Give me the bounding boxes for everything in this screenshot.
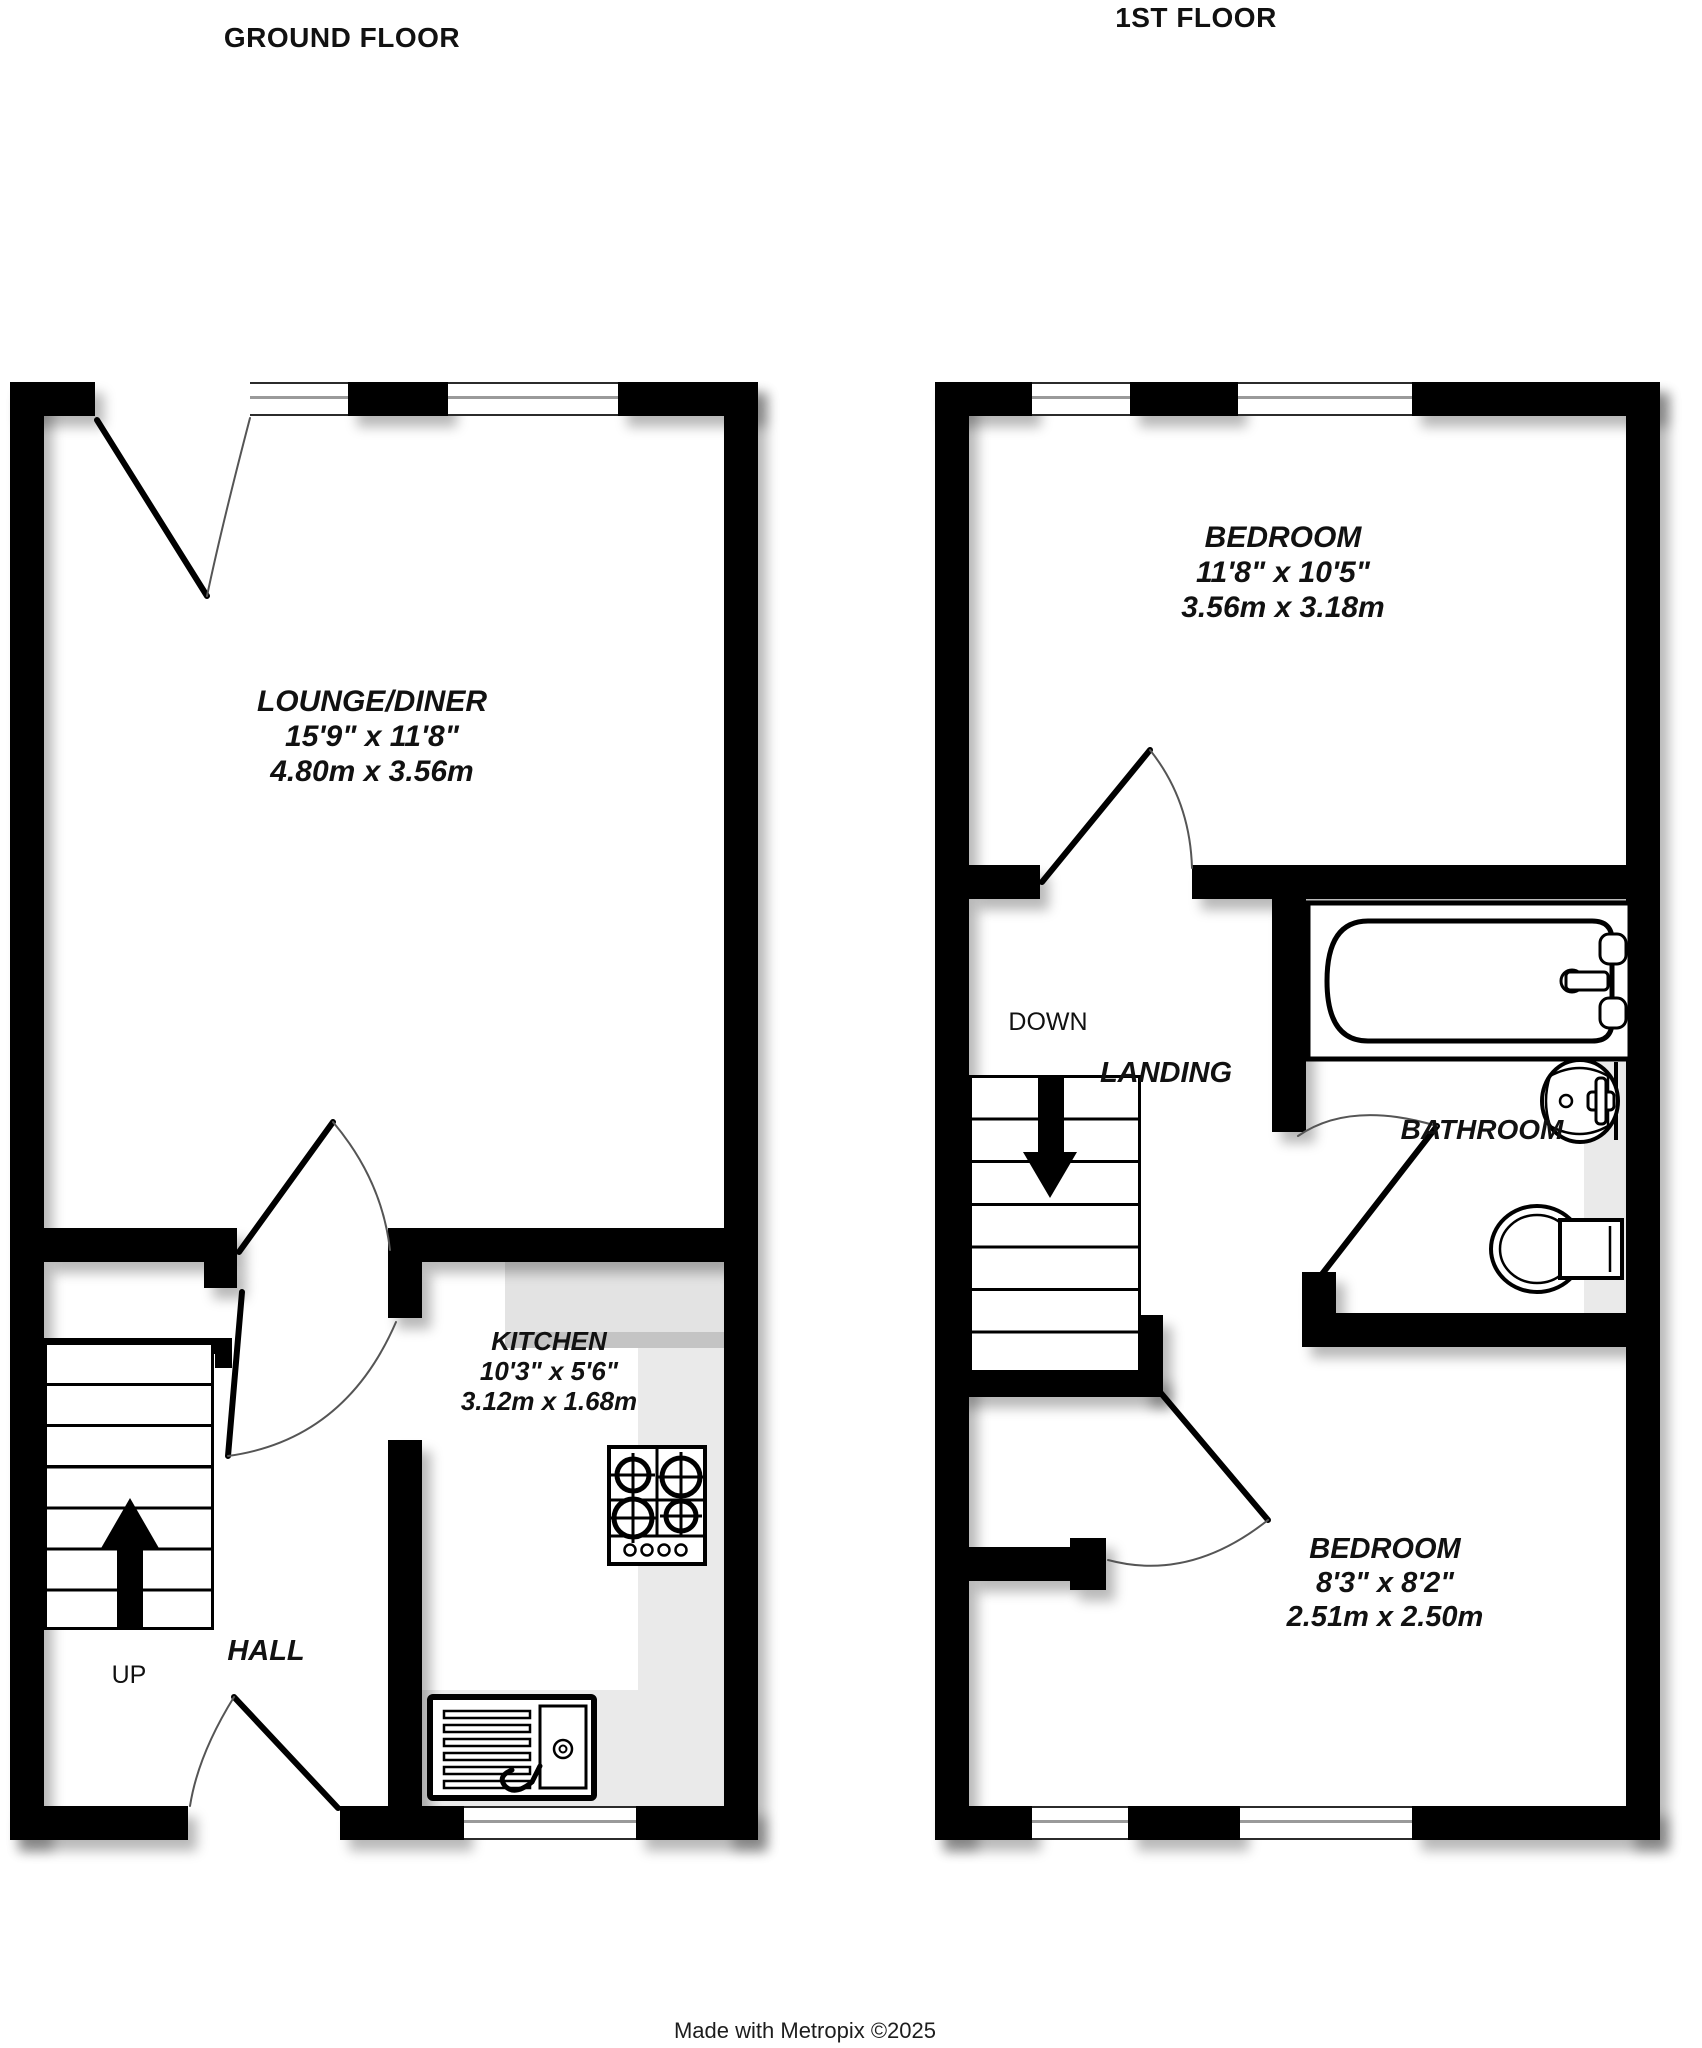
ff-bedroom1-wall-left <box>969 865 1040 899</box>
gf-window-top-1 <box>250 382 348 416</box>
bathroom-shelf-strip <box>1584 1058 1626 1313</box>
gf-lounge-wall-stub <box>204 1262 237 1288</box>
bedroom1-name: BEDROOM <box>1083 520 1483 555</box>
ff-stairs-right-stub <box>1141 1315 1163 1397</box>
hall-label: HALL <box>166 1634 366 1669</box>
gf-stairs-top-stub <box>215 1338 232 1368</box>
ff-bathroom-bottom-wall <box>1302 1313 1626 1347</box>
gf-lounge-wall-left <box>44 1228 237 1262</box>
gf-left-wall <box>10 382 44 1840</box>
lounge-imperial: 15'9" x 11'8" <box>172 719 572 754</box>
fixtures-overlay <box>0 0 1702 2048</box>
ff-bedroom1-wall-right <box>1192 865 1626 899</box>
ff-bottom-wall-left <box>935 1806 1032 1840</box>
ff-landing-bathroom-divider <box>1272 899 1306 1132</box>
gf-bottom-wall-mid <box>340 1806 464 1840</box>
gf-right-wall <box>724 382 758 1840</box>
ff-right-wall <box>1626 382 1660 1840</box>
ff-bottom-wall-mid <box>1128 1806 1240 1840</box>
kitchen-imperial: 10'3" x 5'6" <box>399 1356 699 1386</box>
gf-kitchen-wall-upper <box>388 1262 422 1318</box>
bathtub-icon <box>1308 903 1630 1059</box>
bedroom1-imperial: 11'8" x 10'5" <box>1083 555 1483 590</box>
metropix-credit: Made with Metropix ©2025 <box>555 2018 1055 2044</box>
gf-bottom-wall-right <box>636 1806 758 1840</box>
bedroom1-label: BEDROOM 11'8" x 10'5" 3.56m x 3.18m <box>1083 520 1483 625</box>
ff-landing-stub-wall <box>969 1547 1070 1581</box>
bedroom2-metric: 2.51m x 2.50m <box>1185 1600 1585 1634</box>
gf-top-door-swing <box>97 418 250 596</box>
bedroom2-label: BEDROOM 8'3" x 8'2" 2.51m x 2.50m <box>1185 1532 1585 1634</box>
first-floor-title: 1ST FLOOR <box>996 2 1396 34</box>
floorplan-canvas: GROUND FLOOR 1ST FLOOR <box>0 0 1702 2048</box>
gf-lounge-door-swing <box>239 1122 390 1252</box>
kitchen-metric: 3.12m x 1.68m <box>399 1386 699 1416</box>
stairs-down-label: DOWN <box>978 1008 1118 1037</box>
ff-bathroom-door-jamb <box>1302 1272 1336 1313</box>
kitchen-counter-right <box>638 1348 724 1806</box>
ff-left-wall <box>935 382 969 1840</box>
lounge-metric: 4.80m x 3.56m <box>172 754 572 789</box>
gf-window-top-2 <box>448 382 618 416</box>
ground-floor-title: GROUND FLOOR <box>142 22 542 54</box>
ff-landing-stub-cap <box>1070 1538 1106 1590</box>
gf-lounge-wall-right <box>388 1228 724 1262</box>
gf-front-door-swing <box>190 1697 338 1808</box>
kitchen-label: KITCHEN 10'3" x 5'6" 3.12m x 1.68m <box>399 1326 699 1416</box>
ff-bedroom1-door-swing <box>1042 750 1192 882</box>
gf-top-wall-mid <box>348 382 448 416</box>
gf-window-bottom <box>464 1806 636 1840</box>
bedroom1-metric: 3.56m x 3.18m <box>1083 590 1483 625</box>
gf-bottom-wall-left <box>10 1806 188 1840</box>
ff-stairs-bottom-cap <box>955 1373 1163 1397</box>
ff-window-bottom-2 <box>1240 1806 1412 1840</box>
kitchen-name: KITCHEN <box>399 1326 699 1356</box>
lounge-name: LOUNGE/DINER <box>172 684 572 719</box>
kitchen-counter-bottom <box>422 1690 638 1806</box>
ff-top-wall-right <box>1412 382 1660 416</box>
bedroom2-imperial: 8'3" x 8'2" <box>1185 1566 1585 1600</box>
ff-bottom-wall-right <box>1412 1806 1660 1840</box>
ff-window-top-2 <box>1238 382 1412 416</box>
lounge-label: LOUNGE/DINER 15'9" x 11'8" 4.80m x 3.56m <box>172 684 572 789</box>
ff-window-top-1 <box>1032 382 1130 416</box>
ff-top-wall-mid <box>1130 382 1238 416</box>
gf-staircase <box>44 1342 214 1630</box>
ff-window-bottom-1 <box>1032 1806 1128 1840</box>
bedroom2-name: BEDROOM <box>1185 1532 1585 1566</box>
gf-kitchen-door-swing <box>228 1292 396 1456</box>
ff-staircase <box>969 1075 1141 1373</box>
bathroom-label: BATHROOM <box>1332 1112 1632 1147</box>
gf-kitchen-wall-lower <box>388 1440 422 1806</box>
landing-label: LANDING <box>1046 1056 1286 1091</box>
stairs-up-label: UP <box>79 1661 179 1690</box>
